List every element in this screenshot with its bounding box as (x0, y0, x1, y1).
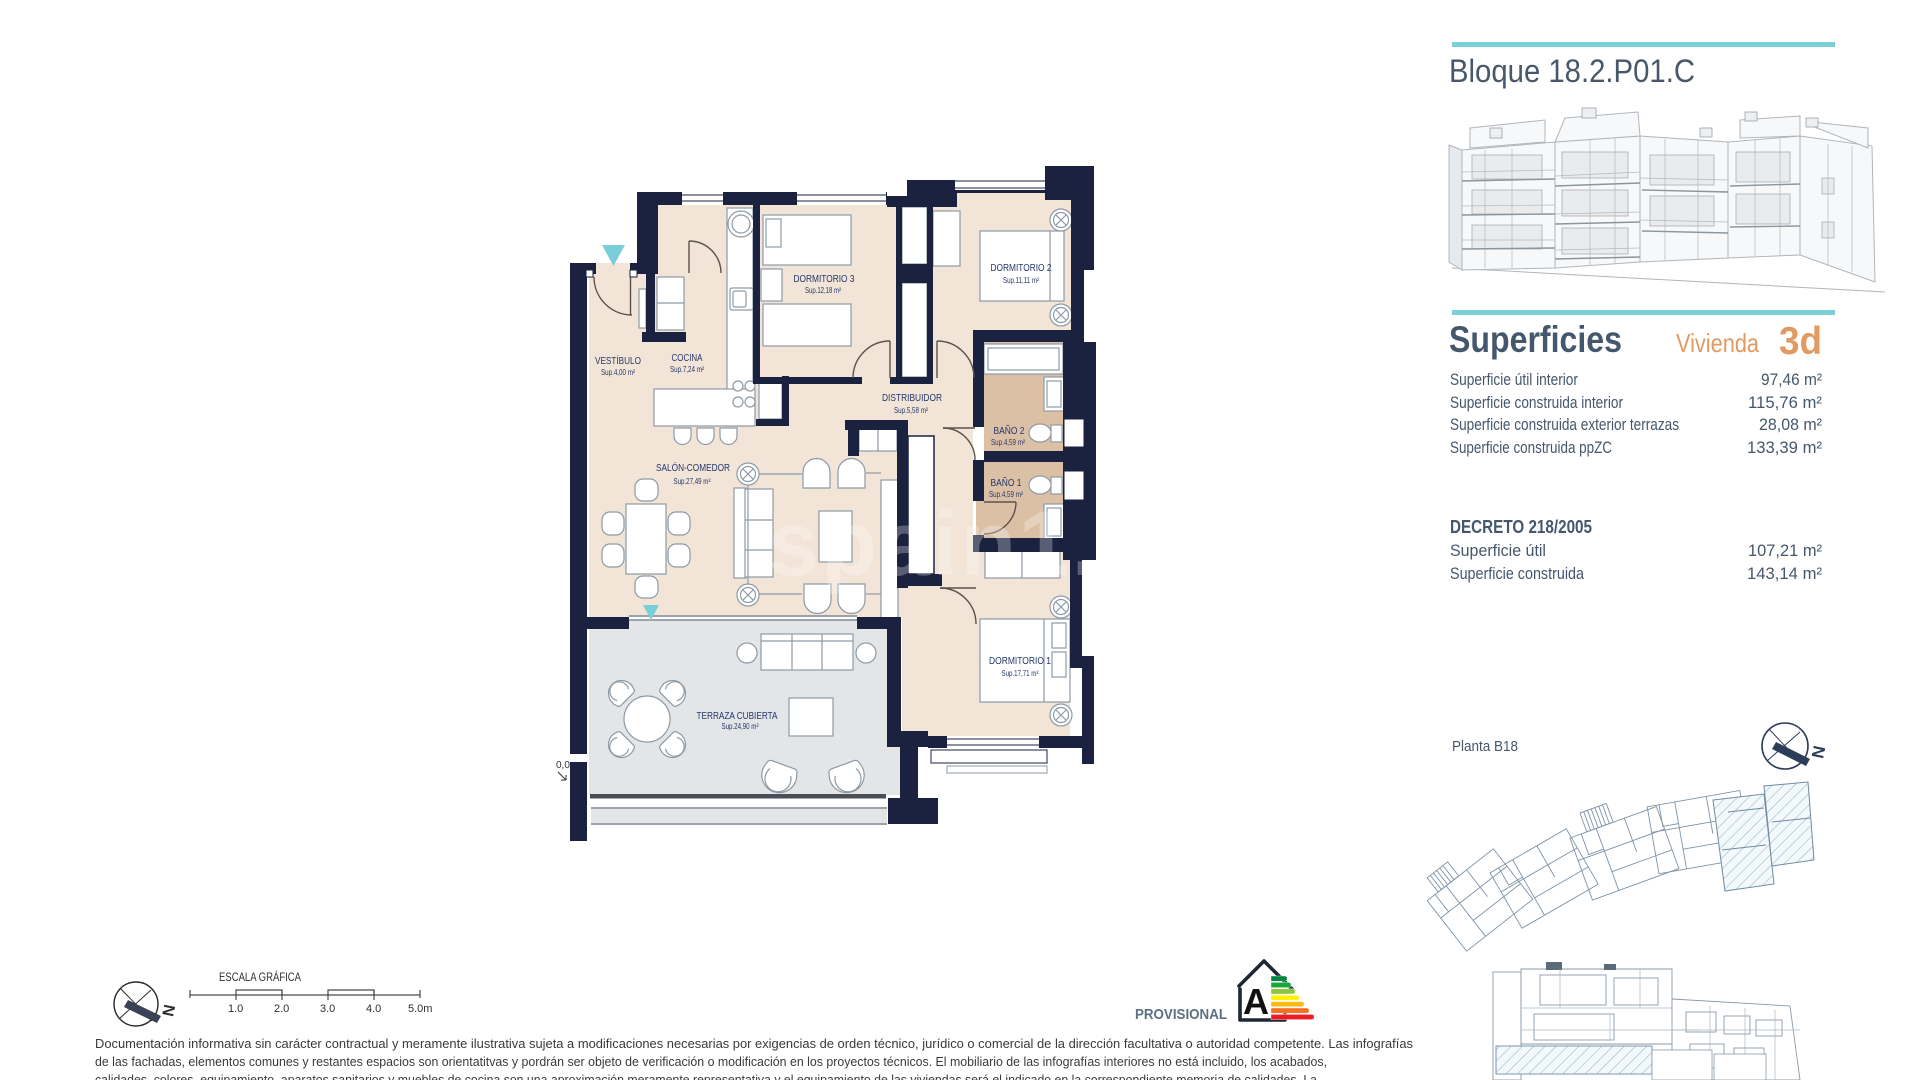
svg-text:DISTRIBUIDOR: DISTRIBUIDOR (882, 393, 942, 404)
svg-text:28,08 m²: 28,08 m² (1759, 415, 1822, 434)
svg-text:Bloque 18.2.P01.C: Bloque 18.2.P01.C (1449, 53, 1695, 89)
svg-text:Sup.4,59 m²: Sup.4,59 m² (991, 438, 1025, 447)
svg-text:4.0: 4.0 (366, 1003, 381, 1015)
svg-text:3d: 3d (1779, 320, 1822, 363)
svg-text:Sup.12,18 m²: Sup.12,18 m² (805, 286, 841, 295)
svg-text:Superficies: Superficies (1449, 319, 1622, 360)
svg-text:DORMITORIO 1: DORMITORIO 1 (989, 656, 1051, 667)
svg-text:97,46 m²: 97,46 m² (1761, 370, 1822, 389)
svg-text:115,76 m²: 115,76 m² (1748, 393, 1822, 412)
svg-text:143,14 m²: 143,14 m² (1747, 564, 1822, 583)
svg-text:Superficie construida: Superficie construida (1450, 564, 1584, 583)
svg-text:5.0m: 5.0m (408, 1003, 432, 1015)
svg-text:Planta B18: Planta B18 (1452, 738, 1518, 755)
svg-text:Sup.17,71 m²: Sup.17,71 m² (1002, 669, 1039, 678)
svg-text:DORMITORIO 2: DORMITORIO 2 (991, 263, 1052, 274)
svg-text:Superficie construida exterior: Superficie construida exterior terrazas (1450, 415, 1679, 434)
svg-text:DECRETO 218/2005: DECRETO 218/2005 (1450, 517, 1592, 537)
svg-text:Superficie construida interior: Superficie construida interior (1450, 393, 1623, 412)
svg-text:Superficie útil: Superficie útil (1450, 541, 1546, 560)
svg-text:COCINA: COCINA (672, 353, 703, 364)
svg-text:133,39 m²: 133,39 m² (1747, 438, 1822, 457)
svg-text:BAÑO 2: BAÑO 2 (994, 424, 1025, 437)
svg-text:Vivienda: Vivienda (1676, 328, 1759, 358)
svg-text:Documentación informativa sin: Documentación informativa sin carácter c… (95, 1036, 1413, 1051)
svg-text:BAÑO 1: BAÑO 1 (991, 476, 1022, 489)
svg-text:TERRAZA CUBIERTA: TERRAZA CUBIERTA (697, 710, 778, 722)
svg-text:spain1.com: spain1.com (768, 493, 1294, 595)
svg-text:Sup.11,11 m²: Sup.11,11 m² (1003, 276, 1039, 285)
svg-text:de las fachadas, elementos com: de las fachadas, elementos comunes y res… (95, 1054, 1327, 1069)
svg-text:Sup.24,90 m²: Sup.24,90 m² (722, 722, 759, 731)
svg-text:Sup.4,00 m²: Sup.4,00 m² (601, 368, 635, 377)
svg-text:107,21 m²: 107,21 m² (1748, 541, 1822, 560)
svg-text:A: A (1243, 981, 1269, 1022)
svg-text:PROVISIONAL: PROVISIONAL (1135, 1006, 1227, 1023)
svg-text:3.0: 3.0 (320, 1003, 335, 1015)
svg-text:Sup.7,24 m²: Sup.7,24 m² (670, 365, 704, 374)
svg-text:Superficie construida ppZC: Superficie construida ppZC (1450, 438, 1612, 457)
svg-text:1.0: 1.0 (228, 1003, 243, 1015)
svg-text:DORMITORIO 3: DORMITORIO 3 (794, 274, 855, 285)
svg-text:ESCALA GRÁFICA: ESCALA GRÁFICA (219, 971, 301, 984)
svg-text:Sup.27,49 m²: Sup.27,49 m² (674, 477, 711, 486)
svg-text:calidades, colores, equipamien: calidades, colores, equipamiento, aparat… (95, 1072, 1318, 1080)
svg-text:Sup.5,58 m²: Sup.5,58 m² (894, 406, 928, 415)
svg-text:2.0: 2.0 (274, 1003, 289, 1015)
svg-text:Superficie útil interior: Superficie útil interior (1450, 370, 1578, 389)
svg-text:VESTÍBULO: VESTÍBULO (595, 354, 641, 367)
svg-text:SALÓN-COMEDOR: SALÓN-COMEDOR (656, 461, 730, 474)
svg-text:0,0: 0,0 (556, 760, 570, 771)
